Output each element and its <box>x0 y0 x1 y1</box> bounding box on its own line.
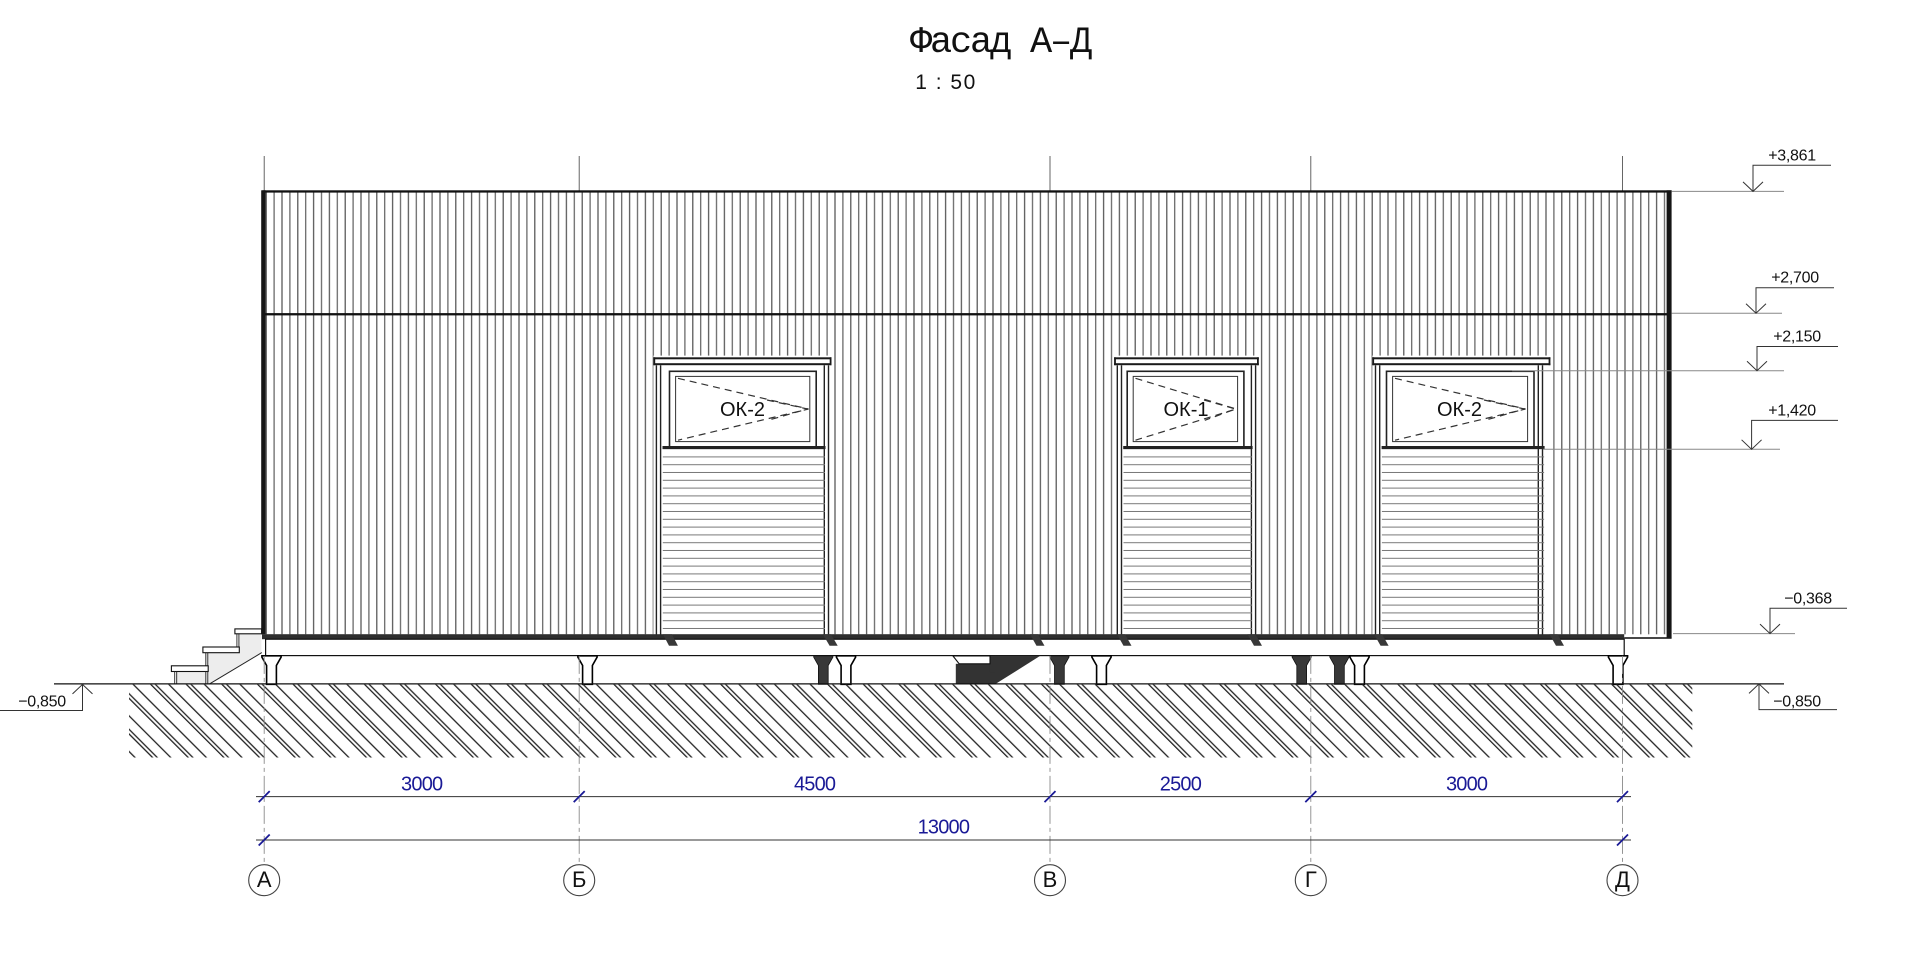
svg-text:Д: Д <box>1615 867 1630 892</box>
svg-text:−0,850: −0,850 <box>1773 694 1821 711</box>
svg-text:ОК-2: ОК-2 <box>720 399 765 421</box>
svg-text:Б: Б <box>572 867 586 892</box>
svg-text:−0,368: −0,368 <box>1784 591 1832 608</box>
svg-text:ОК-2: ОК-2 <box>1437 399 1482 421</box>
svg-text:В: В <box>1043 867 1058 892</box>
svg-text:4500: 4500 <box>794 774 836 796</box>
svg-text:ОК-1: ОК-1 <box>1164 399 1209 421</box>
svg-text:13000: 13000 <box>918 817 970 839</box>
svg-text:+3,861: +3,861 <box>1768 148 1816 165</box>
svg-text:1 : 50: 1 : 50 <box>915 71 977 94</box>
svg-text:+2,700: +2,700 <box>1771 270 1819 287</box>
svg-text:+1,420: +1,420 <box>1768 403 1816 420</box>
svg-text:А: А <box>257 867 272 892</box>
svg-text:+2,150: +2,150 <box>1773 329 1821 346</box>
svg-text:Г: Г <box>1305 867 1317 892</box>
svg-text:2500: 2500 <box>1160 774 1202 796</box>
svg-text:−0,850: −0,850 <box>18 694 66 711</box>
svg-text:Фасад А–Д: Фасад А–Д <box>910 22 1092 64</box>
svg-text:3000: 3000 <box>1446 774 1488 796</box>
svg-text:3000: 3000 <box>401 774 443 796</box>
